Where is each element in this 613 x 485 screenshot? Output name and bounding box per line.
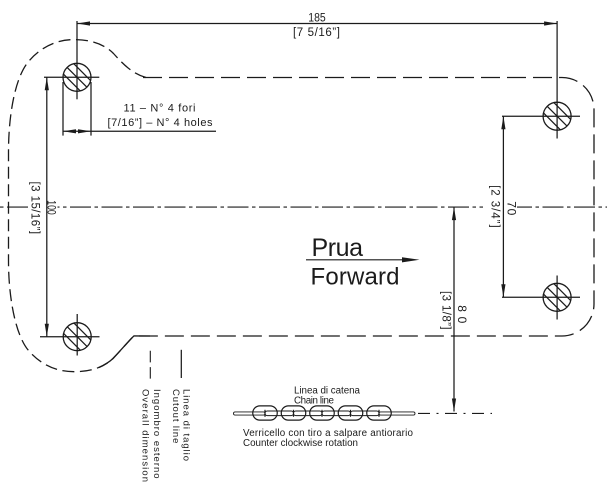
svg-text:[3 15/16”]: [3 15/16”] <box>29 182 41 235</box>
svg-text:11 – N° 4 fori: 11 – N° 4 fori <box>124 103 196 115</box>
svg-text:[7/16”] – N° 4 holes: [7/16”] – N° 4 holes <box>108 117 214 129</box>
svg-text:Ingombro esterno: Ingombro esterno <box>151 389 162 479</box>
svg-text:[3 1/8”]: [3 1/8”] <box>440 291 452 330</box>
svg-text:Forward: Forward <box>311 264 400 291</box>
svg-text:Cutout line: Cutout line <box>170 389 181 443</box>
svg-text:[7 5/16”]: [7 5/16”] <box>293 27 340 39</box>
svg-text:Counter clockwise rotation: Counter clockwise rotation <box>243 438 358 449</box>
svg-text:[2 3/4”]: [2 3/4”] <box>489 185 501 228</box>
svg-text:Overall dimension: Overall dimension <box>140 389 151 482</box>
svg-text:Linea di taglio: Linea di taglio <box>180 389 191 461</box>
svg-text:100: 100 <box>44 200 58 215</box>
svg-text:Prua: Prua <box>312 234 364 262</box>
svg-text:185: 185 <box>308 11 326 25</box>
svg-text:Chain line: Chain line <box>294 395 335 406</box>
svg-text:70: 70 <box>504 201 518 215</box>
